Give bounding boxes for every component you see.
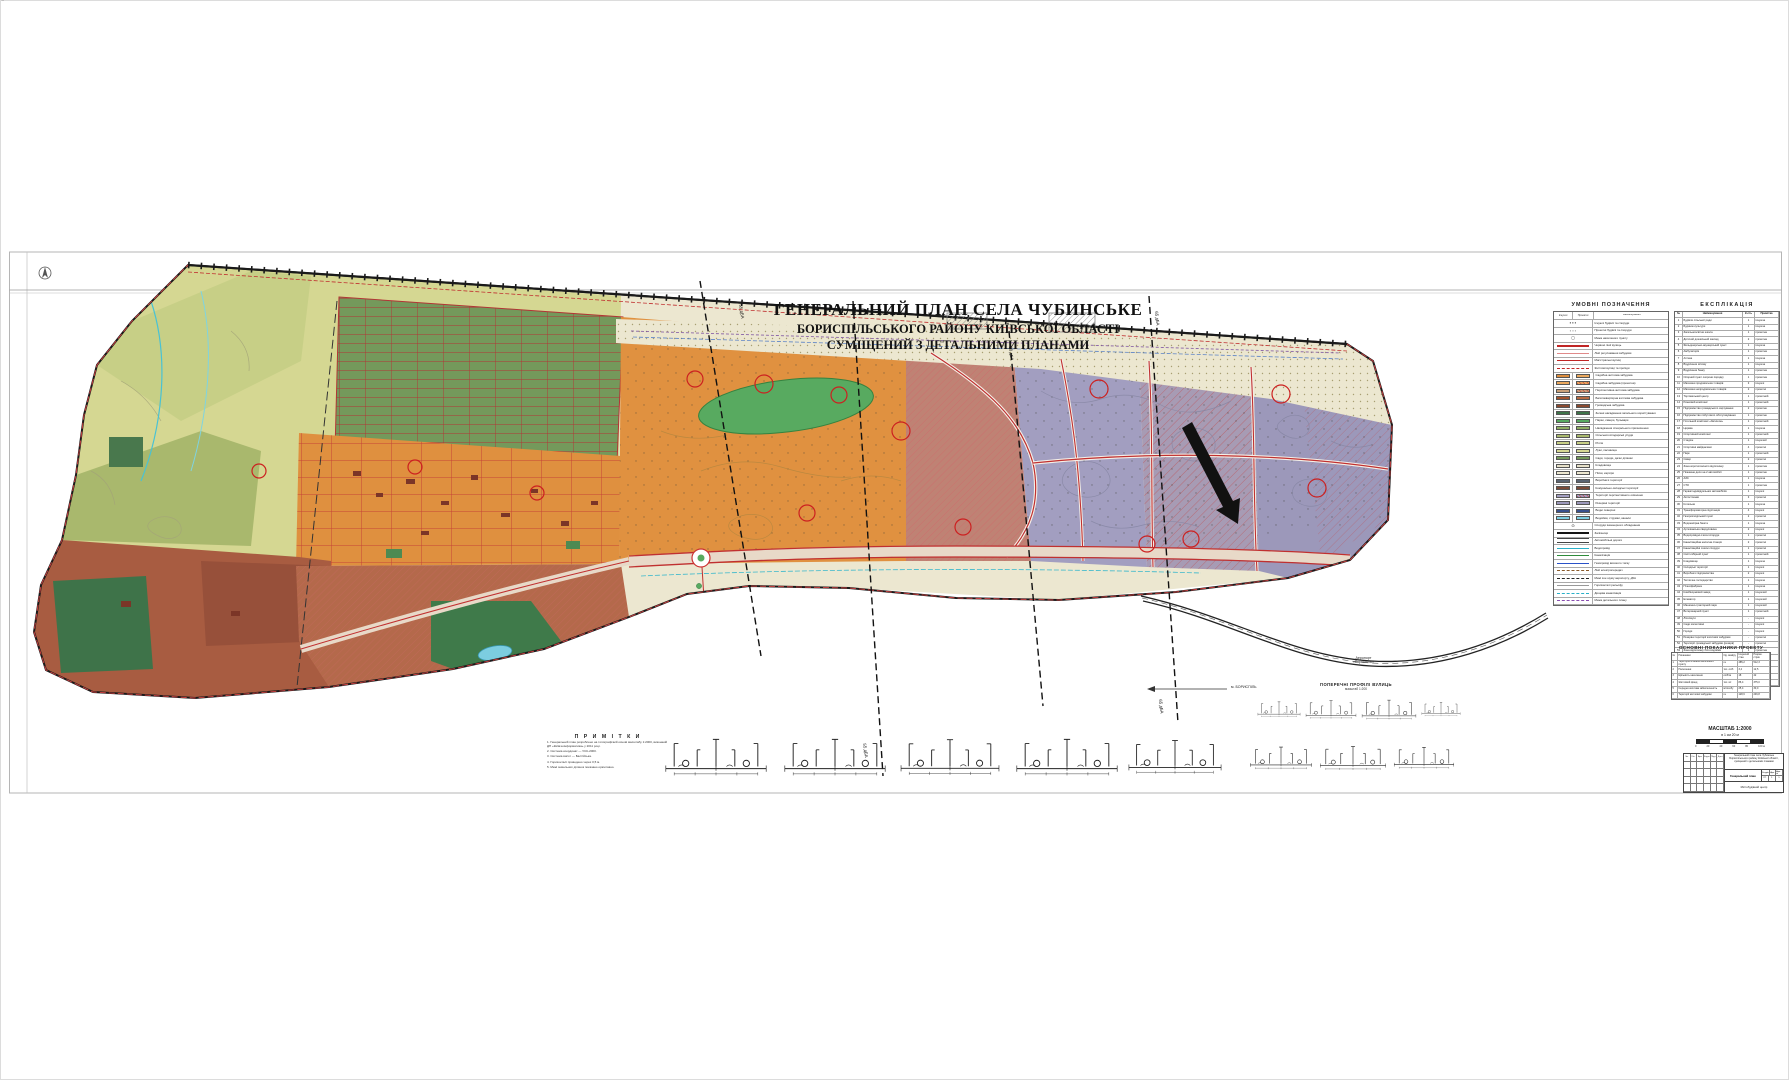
legend-row: Житлові вулиці та проїзди [1554, 365, 1668, 373]
legend-row: Дощова каналізація [1554, 590, 1668, 598]
north-arrow-icon [39, 267, 51, 279]
legend-row: Лінії регулювання забудови [1554, 350, 1668, 358]
note-line: 5. Межі земельних ділянок показано орієн… [547, 766, 669, 770]
plan-title-line2: БОРИСПІЛЬСЬКОГО РАЙОНУ КИЇВСЬКОЇ ОБЛАСТІ [758, 322, 1158, 337]
legend-row: Садибна забудова (проектна) [1554, 380, 1668, 388]
legend-row: Сільськогосподарські угіддя [1554, 433, 1668, 441]
stamp-revision-grid: Зм.Кіл.Арк.№док.Підп.Дата [1684, 754, 1725, 792]
legend-row: Водні поверхні [1554, 508, 1668, 516]
note-line: 4. Горизонталі проведено через 0,5 м. [547, 761, 669, 765]
plan-title-line3: СУМІЩЕНИЙ З ДЕТАЛЬНИМИ ПЛАНАМИ [758, 338, 1158, 353]
legend-row: Червоні лінії вулиць [1554, 343, 1668, 351]
title-block-stamp: Зм.Кіл.Арк.№док.Підп.Дата Генеральний пл… [1683, 753, 1784, 793]
stamp-sheet-no: 1 [1769, 776, 1776, 781]
legend-panel: УМОВНІ ПОЗНАЧЕННЯ Існуючі Проектні Найме… [1553, 302, 1669, 606]
legend-row: Каналізація [1554, 553, 1668, 561]
legend-row: Перспективна житлова забудова [1554, 388, 1668, 396]
legend-row: Автомобільні дороги [1554, 538, 1668, 546]
plan-title: ГЕНЕРАЛЬНИЙ ПЛАН СЕЛА ЧУБИНСЬКЕ БОРИСПІЛ… [758, 300, 1158, 353]
scale-title: МАСШТАБ 1:2000 [1691, 726, 1769, 732]
explication-panel: ЕКСПЛІКАЦІЯ №НайменуванняК-стьПримітка1Б… [1674, 302, 1780, 687]
legend-row: ◻Межа населеного пункту [1554, 335, 1668, 343]
legend-row: Залізниця [1554, 530, 1668, 538]
cross-sections-group [1258, 700, 1460, 719]
legend-row: Садибна житлова забудова [1554, 373, 1668, 381]
legend-row: Резервні території [1554, 500, 1668, 508]
profiles-group-label: ПОПЕРЕЧНІ ПРОФІЛІ ВУЛИЦЬ масштаб 1:200 [1301, 682, 1411, 691]
airport-label: Аеропорт«Бориспіль» [1353, 657, 1374, 665]
stamp-stage: ГП [1762, 776, 1769, 781]
legend-table: Існуючі Проектні Найменування ▪ ▪ ▪Існую… [1553, 311, 1669, 606]
scale-block: МАСШТАБ 1:2000 в 1 см 20 м 020406080100 … [1691, 726, 1769, 748]
note-line: 1. Генеральний план розроблено на топогр… [547, 741, 669, 749]
stamp-sheet-name: Генеральний план [1725, 770, 1762, 780]
indicator-row: 6Території житлової забудовига128,6246,8 [1672, 693, 1770, 699]
explication-table: №НайменуванняК-стьПримітка1Будівля сільс… [1674, 311, 1780, 687]
legend-row: Громадська забудова [1554, 403, 1668, 411]
indicators-panel: ОСНОВНІ ПОКАЗНИКИ ПРОЕКТУ №ПоказникиОд. … [1671, 645, 1771, 700]
legend-row: Зелені насадження загального користуванн… [1554, 410, 1668, 418]
legend-row: Парки, сквери, бульвари [1554, 418, 1668, 426]
legend-row: Луки, пасовища [1554, 448, 1668, 456]
legend-row: Комунально-складські території [1554, 485, 1668, 493]
legend-row: ▫ ▫ ▫Проектні будівлі та споруди [1554, 328, 1668, 336]
legend-row: Межі зон шуму аеропорту, дБА [1554, 575, 1668, 583]
legend-title: УМОВНІ ПОЗНАЧЕННЯ [1553, 302, 1669, 308]
boryspil-direction-label: м. БОРИСПІЛЬ [1231, 686, 1256, 690]
legend-row: Водойми, струмки, канали [1554, 515, 1668, 523]
stamp-project-name: Генеральний план села Чубинське Бориспіл… [1725, 754, 1783, 770]
roundabout-center [698, 555, 705, 562]
indicators-title: ОСНОВНІ ПОКАЗНИКИ ПРОЕКТУ [1671, 645, 1771, 650]
indicators-table: №ПоказникиОд. виміруІснуючий станРозрах.… [1671, 652, 1771, 700]
graphic-scale-bar [1696, 739, 1764, 744]
scale-ticks: 020406080100 м [1695, 745, 1765, 748]
stamp-organization: Містобудівний центр [1725, 782, 1783, 792]
legend-row: Багатоквартирна житлова забудова [1554, 395, 1668, 403]
legend-row: Водопровід [1554, 545, 1668, 553]
scale-subtitle: в 1 см 20 м [1691, 733, 1769, 737]
legend-row: Кладовища [1554, 463, 1668, 471]
stamp-sheets-total: 1 [1776, 776, 1783, 781]
direction-arrow-boryspil [1147, 686, 1227, 692]
legend-row: Лінії електропередач [1554, 568, 1668, 576]
legend-row: ⊙Споруди інженерного обладнання [1554, 523, 1668, 531]
legend-row: Сади, городи, дачні ділянки [1554, 455, 1668, 463]
legend-row: Піски, кар'єри [1554, 470, 1668, 478]
notes-title: П Р И М І Т К И [547, 734, 669, 740]
cross-sections-row [666, 739, 1454, 775]
legend-row: Магістральні вулиці [1554, 358, 1668, 366]
plan-title-line1: ГЕНЕРАЛЬНИЙ ПЛАН СЕЛА ЧУБИНСЬКЕ [758, 300, 1158, 320]
legend-row: Рілля [1554, 440, 1668, 448]
note-line: 3. Система висот — Балтійська. [547, 755, 669, 759]
legend-header: Існуючі Проектні Найменування [1554, 312, 1668, 320]
legend-row: Виробничі території [1554, 478, 1668, 486]
explication-title: ЕКСПЛІКАЦІЯ [1674, 302, 1780, 308]
notes-block: П Р И М І Т К И 1. Генеральний план розр… [547, 734, 669, 769]
genplan-map[interactable] [1, 1, 1789, 1081]
scanned-masterplan-sheet: { "palette":{ "yellow_fields":"#d5d792",… [0, 0, 1789, 1080]
legend-row: Горизонталі рельєфу [1554, 583, 1668, 591]
bypass-road [1141, 596, 1548, 666]
legend-row: Межа детального плану [1554, 598, 1668, 606]
legend-row: Території перспективного освоєння [1554, 493, 1668, 501]
legend-row: ▪ ▪ ▪Існуючі будівлі та споруди [1554, 320, 1668, 328]
legend-row: Газопровід високого тиску [1554, 560, 1668, 568]
legend-row: Насадження спеціального призначення [1554, 425, 1668, 433]
land-use-zones [34, 265, 1392, 698]
